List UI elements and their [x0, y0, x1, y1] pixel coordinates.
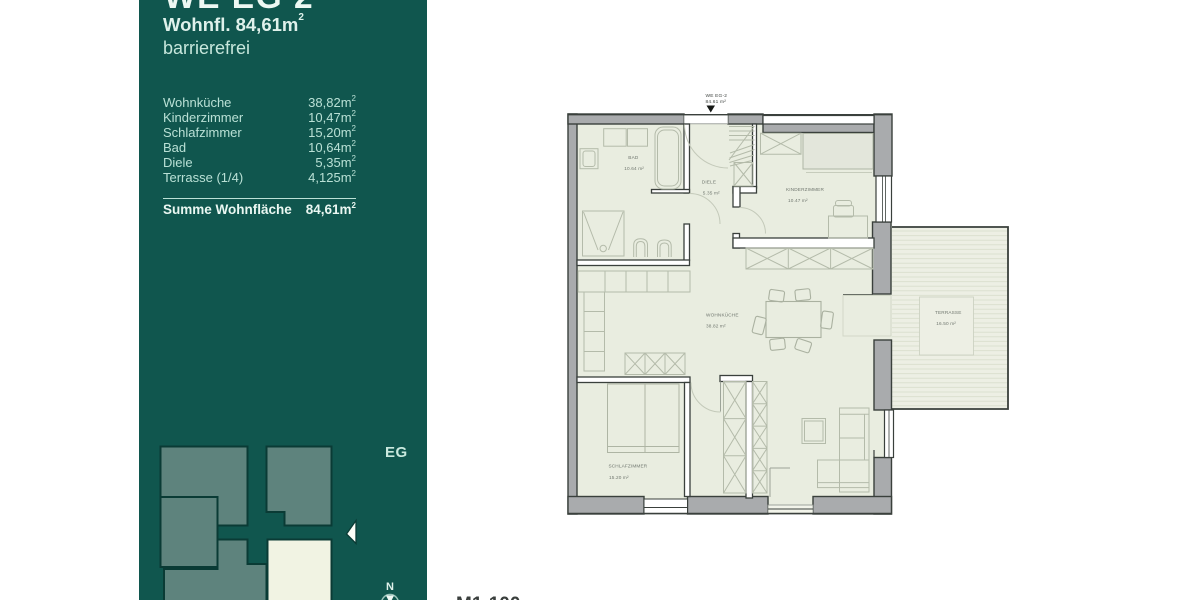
svg-text:DIELE: DIELE	[702, 180, 716, 185]
svg-text:38.82 m²: 38.82 m²	[706, 324, 726, 329]
svg-text:84.61 m²: 84.61 m²	[706, 99, 727, 105]
svg-text:KINDERZIMMER: KINDERZIMMER	[786, 187, 824, 192]
svg-text:WOHNKÜCHE: WOHNKÜCHE	[706, 311, 739, 317]
svg-text:TERRASSE: TERRASSE	[935, 310, 961, 315]
svg-text:BAD: BAD	[628, 155, 639, 160]
svg-text:10.64 m²: 10.64 m²	[624, 166, 644, 171]
svg-text:SCHLAFZIMMER: SCHLAFZIMMER	[609, 464, 648, 469]
svg-text:16.50 m²: 16.50 m²	[936, 321, 956, 326]
svg-text:M1:100: M1:100	[456, 594, 520, 600]
svg-text:WE EG-2: WE EG-2	[706, 93, 728, 99]
svg-text:10.47 m²: 10.47 m²	[788, 198, 808, 203]
svg-text:15.20 m²: 15.20 m²	[609, 475, 629, 480]
svg-text:5.35 m²: 5.35 m²	[703, 190, 720, 195]
